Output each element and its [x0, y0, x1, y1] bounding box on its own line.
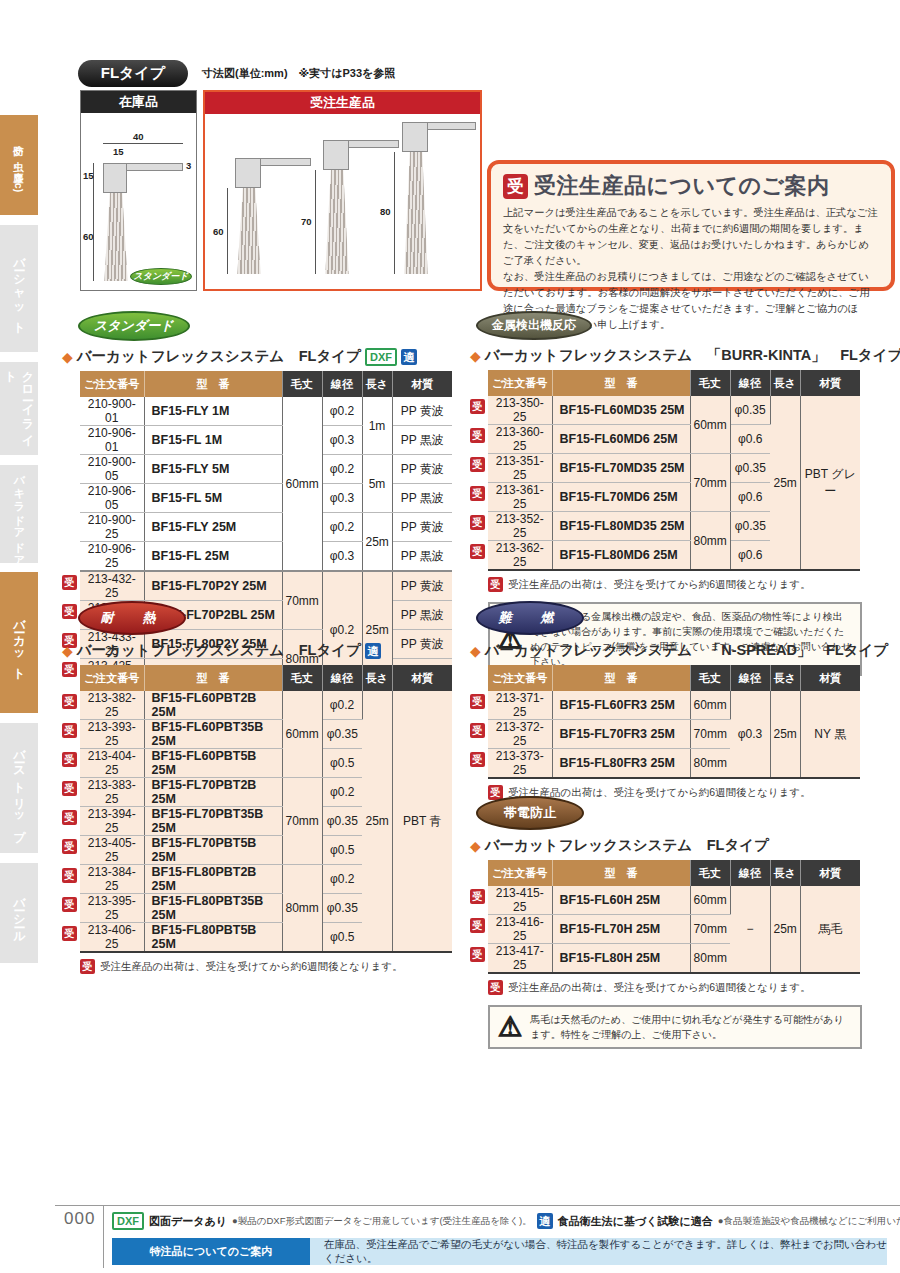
order-number-cell: 213-404-25受: [80, 749, 144, 778]
dxf-legend-desc: ●製品のDXF形式図面データをご用意しています(受注生産品を除く)。: [232, 1215, 532, 1228]
spec-cell: φ0.35: [730, 512, 770, 541]
spec-cell: φ0.35: [322, 720, 362, 749]
column-header: 型 番: [144, 665, 282, 691]
column-header: 線径: [730, 665, 770, 691]
food-safe-legend-title: 食品衛生法に基づく試験に適合: [558, 1214, 713, 1229]
spec-cell: 80mm: [282, 865, 322, 953]
model-number-cell: BF15-FL 5M: [144, 484, 282, 513]
order-made-icon: 受: [62, 752, 77, 767]
order-made-icon: 受: [470, 889, 485, 904]
order-number-cell: 210-900-05: [80, 455, 144, 484]
sidebar-item-bakira-doordoor: バキラドアドア: [0, 465, 38, 563]
order-number-cell: 213-406-25受: [80, 923, 144, 953]
food-safe-mark: 適: [537, 1213, 553, 1229]
column-header: 長さ: [770, 860, 800, 886]
column-header: ご注文番号: [80, 371, 144, 397]
model-number-cell: BF15-FL 1M: [144, 426, 282, 455]
diamond-icon: ◆: [62, 349, 73, 365]
spec-cell: φ0.2: [322, 455, 362, 484]
spec-cell: φ0.3: [322, 542, 362, 572]
order-number-cell: 213-360-25受: [488, 425, 552, 454]
column-header: 線径: [322, 665, 362, 691]
profile-block: [235, 158, 261, 188]
table-row: 213-415-25受BF15-FL60H 25M60mm−25m馬毛: [488, 886, 860, 915]
order-number-cell: 213-371-25受: [488, 691, 552, 720]
dim-80: 80: [380, 206, 391, 217]
spec-cell: φ0.5: [322, 836, 362, 865]
spec-cell: φ0.6: [730, 483, 770, 512]
table-row: 210-906-25BF15-FL 25Mφ0.3PP 黒波: [80, 542, 452, 572]
flame-table: ご注文番号型 番毛丈線径長さ材質213-371-25受BF15-FL60FR3 …: [488, 665, 860, 779]
brush-tuft: [324, 170, 350, 274]
spec-cell: 70mm: [690, 454, 730, 512]
order-made-icon: 受: [470, 486, 485, 501]
column-header: 型 番: [552, 665, 690, 691]
order-number-cell: 210-906-05: [80, 484, 144, 513]
spec-cell: PP 黄波: [392, 571, 452, 601]
order-made-box: 受注生産品 60 70 80: [203, 90, 482, 291]
spec-cell: φ0.3: [322, 426, 362, 455]
order-number-cell: 210-906-01: [80, 426, 144, 455]
column-header: 線径: [730, 370, 770, 396]
column-header: 型 番: [552, 860, 690, 886]
dim-15-left: 15: [83, 170, 94, 181]
order-made-icon: 受: [470, 457, 485, 472]
order-made-icon: 受: [503, 174, 528, 199]
food-safe-legend-desc: ●食品製造施設や食品機械などにご利用いただけます。: [718, 1215, 900, 1228]
section-heat-resistant: 耐 熱 ◆ バーカットフレックスシステム FLタイプ 適 ご注文番号型 番毛丈線…: [62, 601, 462, 974]
spec-cell: 80mm: [690, 512, 730, 571]
model-number-cell: BF15-FLY 5M: [144, 455, 282, 484]
section-heading: ◆ バーカットフレックスシステム FLタイプ DXF 適: [62, 347, 462, 366]
column-header: 材質: [800, 665, 860, 691]
column-header: 材質: [800, 860, 860, 886]
sidebar-item-crawlight: クローイライト: [0, 362, 38, 455]
order-made-icon: 受: [62, 723, 77, 738]
info-paragraph-1: 上記マークは受注生産品であることを示しています。受注生産品は、正式なご注文をいた…: [503, 205, 879, 269]
column-header: 長さ: [362, 371, 392, 397]
footer-divider: [55, 1205, 900, 1206]
order-number-cell: 210-900-25: [80, 513, 144, 542]
spec-cell: φ0.35: [730, 454, 770, 483]
heading-text: バーカットフレックスシステム FLタイプ: [77, 347, 361, 366]
page-number: 000: [64, 1209, 95, 1229]
order-made-icon: 受: [470, 694, 485, 709]
spec-cell: φ0.6: [730, 541, 770, 571]
spec-cell: 5m: [362, 455, 392, 513]
order-number-cell: 213-383-25受: [80, 778, 144, 807]
spec-cell: PBT グレー: [800, 396, 860, 570]
spec-cell: φ0.35: [730, 396, 770, 425]
order-made-icon: 受: [62, 810, 77, 825]
order-made-icon: 受: [80, 959, 95, 974]
model-number-cell: BF15-FL80PBT5B 25M: [144, 923, 282, 953]
order-made-note: 受 受注生産品の出荷は、受注を受けてから約6週間後となります。: [488, 577, 870, 592]
spec-cell: 80mm: [690, 749, 730, 779]
spec-cell: PP 黄波: [392, 455, 452, 484]
dim-line: [103, 143, 183, 144]
column-header: 線径: [322, 371, 362, 397]
column-header: ご注文番号: [80, 665, 144, 691]
column-header: 毛丈: [690, 860, 730, 886]
spec-cell: φ0.6: [730, 425, 770, 454]
metal-detect-table: ご注文番号型 番毛丈線径長さ材質213-350-25受BF15-FL60MD35…: [488, 370, 860, 571]
order-number-cell: 213-393-25受: [80, 720, 144, 749]
dim-15-top: 15: [113, 146, 124, 157]
order-number-cell: 213-352-25受: [488, 512, 552, 541]
flame-badge: 難 燃: [476, 601, 584, 635]
order-made-icon: 受: [62, 575, 77, 590]
standard-badge: スタンダード: [78, 311, 190, 341]
food-safe-mark: 適: [401, 349, 417, 365]
model-number-cell: BF15-FL60MD6 25M: [552, 425, 690, 454]
diamond-icon: ◆: [470, 348, 481, 364]
profile-block: [402, 122, 428, 152]
spec-cell: 60mm: [690, 886, 730, 915]
dim-3: 3: [186, 160, 191, 171]
spec-cell: φ0.35: [322, 894, 362, 923]
order-number-cell: 213-415-25受: [488, 886, 552, 915]
order-number-cell: 210-906-25: [80, 542, 144, 572]
spec-cell: PP 黄波: [392, 397, 452, 426]
model-number-cell: BF15-FL70PBT35B 25M: [144, 807, 282, 836]
order-made-note: 受 受注生産品の出荷は、受注を受けてから約6週間後となります。: [488, 980, 870, 995]
model-number-cell: BF15-FL80MD35 25M: [552, 512, 690, 541]
spec-cell: 60mm: [690, 396, 730, 454]
column-header: 長さ: [770, 370, 800, 396]
spec-cell: φ0.35: [322, 807, 362, 836]
spec-cell: 60mm: [690, 691, 730, 720]
section-flame-retardant: 難 燃 ◆ バーカットフレックスシステム 「N-SPREAD」 FLタイプ ご注…: [470, 601, 870, 800]
spec-cell: 70mm: [282, 778, 322, 865]
column-header: ご注文番号: [488, 860, 552, 886]
heat-badge: 耐 熱: [78, 601, 186, 635]
brush-tuft: [236, 188, 262, 274]
column-header: 材質: [800, 370, 860, 396]
footer-vertical-divider: [103, 1205, 104, 1268]
order-made-icon: 受: [62, 868, 77, 883]
spec-cell: φ0.2: [322, 513, 362, 542]
spec-cell: 60mm: [282, 691, 322, 778]
note-text: 受注生産品の出荷は、受注を受けてから約6週間後となります。: [508, 981, 811, 995]
spec-cell: NY 黒: [800, 691, 860, 778]
dim-line: [227, 188, 228, 274]
column-header: 型 番: [144, 371, 282, 397]
custom-order-bar: 特注品についてのご案内 在庫品、受注生産品でご希望の毛丈がない場合、特注品を製作…: [112, 1238, 887, 1265]
dim-40: 40: [133, 131, 144, 142]
model-number-cell: BF15-FL60PBT2B 25M: [144, 691, 282, 720]
order-made-icon: 受: [470, 723, 485, 738]
sidebar-item-burseal: バーシール: [0, 863, 38, 963]
info-box-title: 受注生産品についてのご案内: [534, 171, 830, 201]
spec-cell: φ0.5: [322, 923, 362, 953]
model-number-cell: BF15-FLY 25M: [144, 513, 282, 542]
order-number-cell: 213-373-25受: [488, 749, 552, 779]
profile-block: [323, 140, 349, 170]
order-made-note: 受 受注生産品の出荷は、受注を受けてから約6週間後となります。: [80, 959, 462, 974]
table-row: 210-906-05BF15-FL 5Mφ0.3PP 黒波: [80, 484, 452, 513]
spec-cell: 馬毛: [800, 886, 860, 973]
model-number-cell: BF15-FL60H 25M: [552, 886, 690, 915]
order-made-icon: 受: [470, 428, 485, 443]
dxf-mark: DXF: [112, 1212, 144, 1230]
note-text: 受注生産品の出荷は、受注を受けてから約6週間後となります。: [100, 960, 403, 974]
order-made-icon: 受: [488, 577, 503, 592]
spec-cell: PP 黄波: [392, 513, 452, 542]
table-row: 210-900-01BF15-FLY 1M60mmφ0.21mPP 黄波: [80, 397, 452, 426]
order-number-cell: 213-350-25受: [488, 396, 552, 425]
column-header: 毛丈: [690, 665, 730, 691]
model-number-cell: BF15-FL70PBT5B 25M: [144, 836, 282, 865]
spec-cell: 1m: [362, 397, 392, 455]
brush-tuft: [403, 152, 429, 274]
order-made-icon: 受: [470, 918, 485, 933]
model-number-cell: BF15-FLY 1M: [144, 397, 282, 426]
spec-cell: 25m: [770, 691, 800, 778]
table-row: 210-906-01BF15-FL 1Mφ0.3PP 黒波: [80, 426, 452, 455]
model-number-cell: BF15-FL70FR3 25M: [552, 720, 690, 749]
order-number-cell: 213-351-25受: [488, 454, 552, 483]
dim-70: 70: [301, 216, 312, 227]
order-made-icon: 受: [470, 399, 485, 414]
custom-order-label: 特注品についてのご案内: [112, 1238, 310, 1265]
model-number-cell: BF15-FL80MD6 25M: [552, 541, 690, 571]
warning-icon: ⚠: [498, 1014, 522, 1041]
standard-mini-badge: スタンダード: [130, 268, 192, 285]
order-number-cell: 210-900-01: [80, 397, 144, 426]
column-header: 線径: [730, 860, 770, 886]
order-number-cell: 213-372-25受: [488, 720, 552, 749]
stock-diagram: 40 15 3 15 60 スタンダード: [81, 113, 196, 290]
dim-line: [315, 170, 316, 274]
section-anti-static: 帯電防止 ◆ バーカットフレックスシステム FLタイプ ご注文番号型 番毛丈線径…: [470, 796, 870, 1049]
heading-text: バーカットフレックスシステム 「BURR-KINTA」 FLタイプ: [485, 346, 900, 365]
footer-legend: DXF 図面データあり ●製品のDXF形式図面データをご用意しています(受注生産…: [112, 1212, 900, 1230]
spec-cell: φ0.2: [322, 778, 362, 807]
spec-cell: PP 黒波: [392, 426, 452, 455]
spec-cell: 80mm: [690, 944, 730, 974]
column-header: 材質: [392, 371, 452, 397]
order-number-cell: 213-416-25受: [488, 915, 552, 944]
order-number-cell: 213-417-25受: [488, 944, 552, 974]
order-made-icon: 受: [470, 515, 485, 530]
fl-type-badge: FLタイプ: [78, 60, 188, 87]
spec-cell: PP 黒波: [392, 484, 452, 513]
table-row: 210-900-05BF15-FLY 5Mφ0.25mPP 黄波: [80, 455, 452, 484]
heading-text: バーカットフレックスシステム FLタイプ: [485, 836, 769, 855]
custom-order-text: 在庫品、受注生産品でご希望の毛丈がない場合、特注品を製作することができます。詳し…: [310, 1238, 887, 1265]
spec-cell: 70mm: [690, 915, 730, 944]
diamond-icon: ◆: [470, 643, 481, 659]
spec-cell: φ0.2: [322, 397, 362, 426]
spec-cell: −: [730, 886, 770, 973]
model-number-cell: BF15-FL80PBT35B 25M: [144, 894, 282, 923]
stock-box-title: 在庫品: [81, 91, 196, 113]
diamond-icon: ◆: [470, 838, 481, 854]
column-header: 毛丈: [282, 371, 322, 397]
spec-cell: 60mm: [282, 397, 322, 571]
spec-cell: 70mm: [690, 720, 730, 749]
column-header: 長さ: [362, 665, 392, 691]
order-made-icon: 受: [62, 781, 77, 796]
section-heading: ◆ バーカットフレックスシステム 「BURR-KINTA」 FLタイプ 適: [470, 346, 870, 365]
section-heading: ◆ バーカットフレックスシステム FLタイプ 適: [62, 641, 462, 660]
order-made-icon: 受: [62, 926, 77, 941]
order-number-cell: 213-361-25受: [488, 483, 552, 512]
model-number-cell: BF15-FL70P2Y 25M: [144, 571, 282, 601]
order-made-icon: 受: [470, 544, 485, 559]
column-header: 型 番: [552, 370, 690, 396]
spec-cell: PP 黒波: [392, 542, 452, 572]
column-header: 長さ: [770, 665, 800, 691]
sidebar-item-burshut: バーシャット: [0, 225, 38, 352]
model-number-cell: BF15-FL80PBT2B 25M: [144, 865, 282, 894]
model-number-cell: BF15-FL60PBT5B 25M: [144, 749, 282, 778]
warning-text: 馬毛は天然毛のため、ご使用中に切れ毛などが発生する可能性があります。特性をご理解…: [530, 1012, 852, 1042]
order-made-icon: 受: [488, 980, 503, 995]
order-number-cell: 213-382-25受: [80, 691, 144, 720]
stock-product-box: 在庫品 40 15 3 15 60 スタンダード: [80, 90, 197, 291]
spec-cell: 25m: [770, 396, 800, 570]
note-text: 受注生産品の出荷は、受注を受けてから約6週間後となります。: [508, 578, 811, 592]
order-made-icon: 受: [62, 897, 77, 912]
model-number-cell: BF15-FL80FR3 25M: [552, 749, 690, 779]
spec-cell: φ0.5: [322, 749, 362, 778]
order-number-cell: 213-405-25受: [80, 836, 144, 865]
column-header: ご注文番号: [488, 665, 552, 691]
dim-60: 60: [213, 226, 224, 237]
order-number-cell: 213-384-25受: [80, 865, 144, 894]
dim-line: [394, 152, 395, 274]
brush-tuft: [103, 193, 129, 281]
spec-cell: 25m: [362, 513, 392, 572]
column-header: 毛丈: [282, 665, 322, 691]
order-box-title: 受注生産品: [205, 92, 480, 114]
spec-cell: φ0.2: [322, 691, 362, 720]
food-safe-mark: 適: [365, 643, 381, 659]
order-made-icon: 受: [470, 752, 485, 767]
spec-cell: 25m: [770, 886, 800, 973]
heat-table: ご注文番号型 番毛丈線径長さ材質213-382-25受BF15-FL60PBT2…: [80, 665, 452, 953]
sidebar-category-fusegu: 防ぐ(虫、塵、etc): [0, 115, 38, 215]
horse-hair-warning: ⚠ 馬毛は天然毛のため、ご使用中に切れ毛などが発生する可能性があります。特性をご…: [488, 1005, 862, 1049]
metal-detect-badge: 金属検出機反応: [476, 311, 592, 340]
table-row: 213-432-25受BF15-FL70P2Y 25M70mmφ0.225mPP…: [80, 571, 452, 601]
order-made-info-box: 受 受注生産品についてのご案内 上記マークは受注生産品であることを示しています。…: [487, 160, 895, 291]
anti-static-table: ご注文番号型 番毛丈線径長さ材質213-415-25受BF15-FL60H 25…: [488, 860, 860, 974]
sidebar-item-burstrip: バーストリップ: [0, 723, 38, 853]
table-row: 213-350-25受BF15-FL60MD35 25M60mmφ0.3525m…: [488, 396, 860, 425]
heading-text: バーカットフレックスシステム 「N-SPREAD」 FLタイプ: [485, 641, 888, 660]
profile-block: [103, 163, 127, 193]
model-number-cell: BF15-FL60MD35 25M: [552, 396, 690, 425]
order-made-icon: 受: [62, 694, 77, 709]
dxf-mark: DXF: [365, 348, 397, 366]
model-number-cell: BF15-FL70MD35 25M: [552, 454, 690, 483]
model-number-cell: BF15-FL70MD6 25M: [552, 483, 690, 512]
section-heading: ◆ バーカットフレックスシステム FLタイプ: [470, 836, 870, 855]
model-number-cell: BF15-FL70H 25M: [552, 915, 690, 944]
spec-cell: φ0.3: [730, 691, 770, 778]
order-made-icon: 受: [62, 839, 77, 854]
order-made-icon: 受: [470, 947, 485, 962]
table-row: 213-371-25受BF15-FL60FR3 25M60mmφ0.325mNY…: [488, 691, 860, 720]
column-header: 材質: [392, 665, 452, 691]
order-number-cell: 213-362-25受: [488, 541, 552, 571]
spec-cell: φ0.3: [322, 484, 362, 513]
heading-text: バーカットフレックスシステム FLタイプ: [77, 641, 361, 660]
spec-cell: PBT 青: [392, 691, 452, 952]
column-header: 毛丈: [690, 370, 730, 396]
column-header: ご注文番号: [488, 370, 552, 396]
model-number-cell: BF15-FL 25M: [144, 542, 282, 572]
diamond-icon: ◆: [62, 643, 73, 659]
dimension-caption: 寸法図(単位:mm) ※実寸はP33を参照: [202, 66, 395, 81]
model-number-cell: BF15-FL70PBT2B 25M: [144, 778, 282, 807]
spec-cell: 25m: [362, 691, 392, 952]
order-diagram: 60 70 80: [205, 114, 480, 289]
section-heading: ◆ バーカットフレックスシステム 「N-SPREAD」 FLタイプ: [470, 641, 870, 660]
model-number-cell: BF15-FL60PBT35B 25M: [144, 720, 282, 749]
dxf-legend-title: 図面データあり: [149, 1214, 227, 1229]
order-number-cell: 213-394-25受: [80, 807, 144, 836]
order-number-cell: 213-395-25受: [80, 894, 144, 923]
table-row: 210-900-25BF15-FLY 25Mφ0.225mPP 黄波: [80, 513, 452, 542]
spec-cell: φ0.2: [322, 865, 362, 894]
order-number-cell: 213-432-25受: [80, 571, 144, 601]
anti-static-badge: 帯電防止: [476, 796, 584, 830]
model-number-cell: BF15-FL60FR3 25M: [552, 691, 690, 720]
model-number-cell: BF15-FL80H 25M: [552, 944, 690, 974]
table-row: 213-382-25受BF15-FL60PBT2B 25M60mmφ0.225m…: [80, 691, 452, 720]
dim-60: 60: [83, 231, 94, 242]
sidebar-item-burcut-active: バーカット: [0, 572, 38, 713]
